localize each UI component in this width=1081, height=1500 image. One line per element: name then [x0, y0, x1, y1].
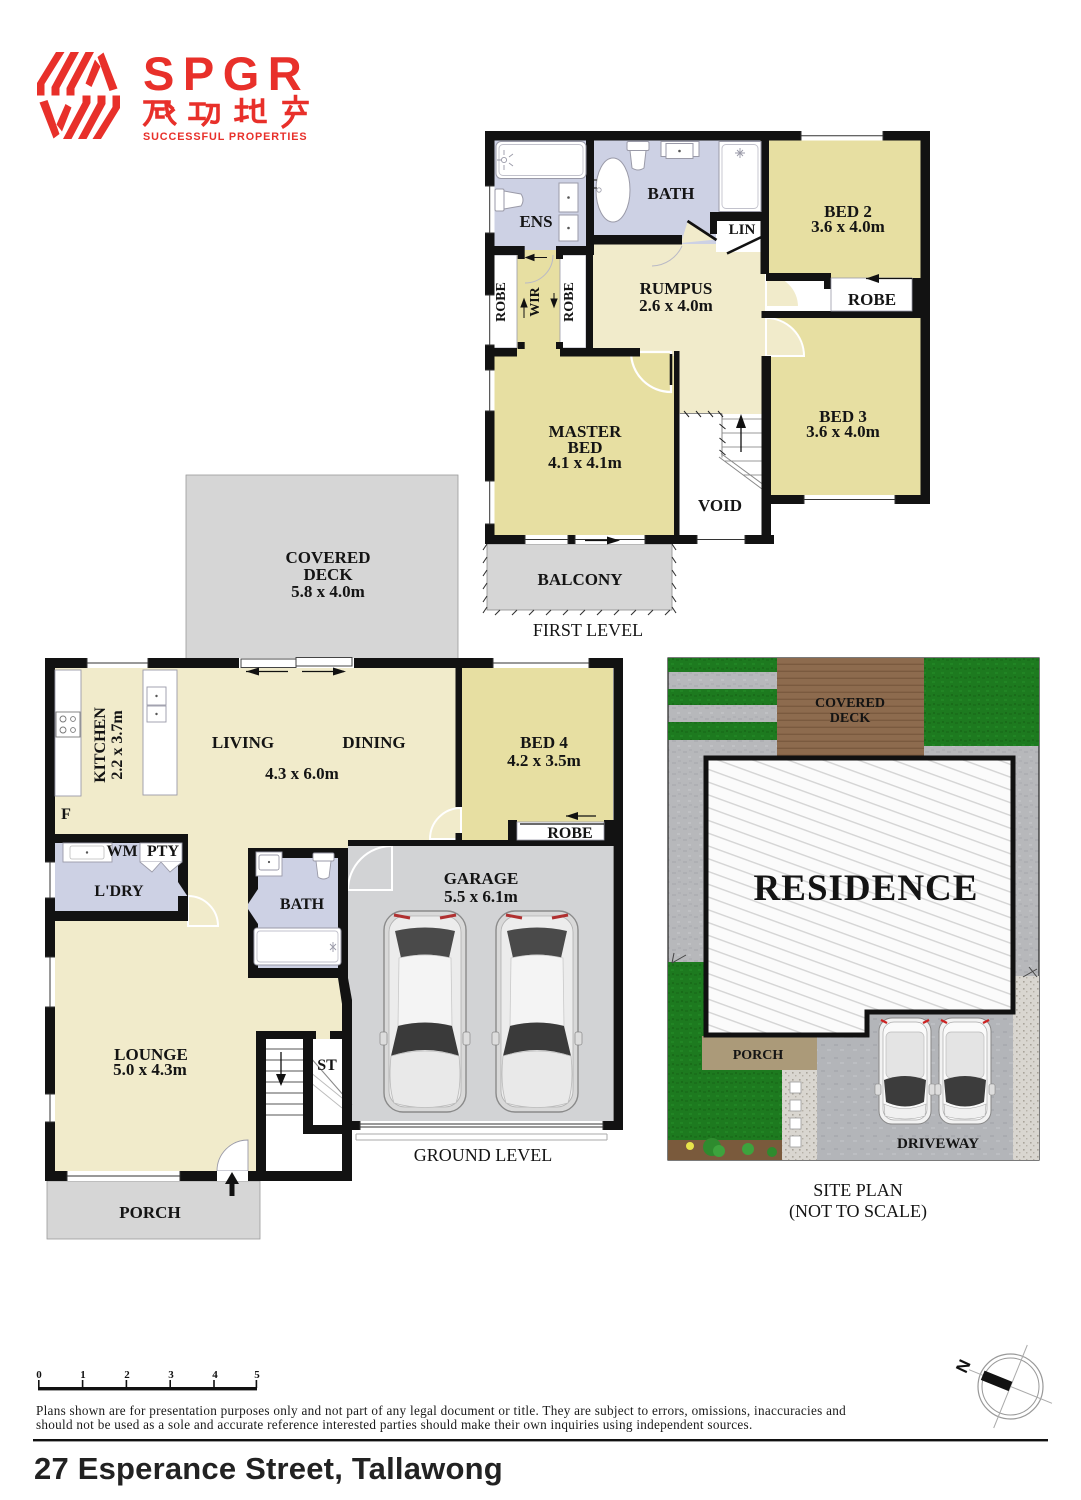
svg-text:PORCH: PORCH [119, 1203, 180, 1222]
svg-text:SPGR: SPGR [143, 47, 310, 100]
svg-text:2: 2 [124, 1369, 130, 1381]
svg-text:(NOT TO SCALE): (NOT TO SCALE) [789, 1201, 927, 1222]
svg-text:5: 5 [254, 1369, 260, 1381]
svg-text:ST: ST [317, 1057, 337, 1074]
svg-text:5.8 x 4.0m: 5.8 x 4.0m [291, 582, 365, 601]
svg-text:ROBE: ROBE [562, 282, 577, 322]
svg-text:ROBE: ROBE [547, 825, 592, 842]
svg-text:should not be used as a sole a: should not be used as a sole and accurat… [36, 1417, 753, 1432]
svg-text:2.6 x 4.0m: 2.6 x 4.0m [639, 296, 713, 315]
svg-text:WM: WM [106, 843, 137, 860]
svg-text:GROUND LEVEL: GROUND LEVEL [414, 1145, 552, 1165]
svg-text:COVERED: COVERED [815, 696, 885, 711]
svg-text:PTY: PTY [147, 843, 179, 860]
svg-text:BATH: BATH [648, 184, 695, 203]
svg-text:BATH: BATH [280, 896, 325, 913]
svg-text:DINING: DINING [342, 733, 405, 752]
svg-text:ROBE: ROBE [494, 282, 509, 322]
svg-text:3.6 x 4.0m: 3.6 x 4.0m [806, 422, 880, 441]
svg-text:LIVING: LIVING [212, 733, 274, 752]
svg-text:KITCHEN: KITCHEN [92, 707, 109, 783]
svg-text:LIN: LIN [729, 222, 756, 238]
svg-text:DECK: DECK [830, 711, 871, 726]
svg-text:WIR: WIR [528, 286, 543, 316]
svg-text:27 Esperance Street, Tallawong: 27 Esperance Street, Tallawong [34, 1451, 503, 1486]
svg-text:4.2 x 3.5m: 4.2 x 3.5m [507, 751, 581, 770]
svg-text:VOID: VOID [698, 496, 742, 515]
svg-text:F: F [61, 806, 71, 823]
svg-text:Plans shown are for presentati: Plans shown are for presentation purpose… [36, 1403, 846, 1418]
svg-text:4.1 x 4.1m: 4.1 x 4.1m [548, 453, 622, 472]
svg-text:RESIDENCE: RESIDENCE [754, 868, 979, 909]
svg-text:2.2 x 3.7m: 2.2 x 3.7m [109, 710, 126, 780]
svg-text:BED 4: BED 4 [520, 733, 568, 752]
svg-text:3.6 x 4.0m: 3.6 x 4.0m [811, 217, 885, 236]
svg-text:L'DRY: L'DRY [94, 883, 144, 900]
svg-text:N: N [952, 1357, 974, 1376]
svg-text:ENS: ENS [519, 212, 552, 231]
svg-text:4.3 x 6.0m: 4.3 x 6.0m [265, 764, 339, 783]
svg-text:ROBE: ROBE [848, 290, 896, 309]
svg-text:GARAGE: GARAGE [444, 869, 519, 888]
svg-text:1: 1 [80, 1369, 86, 1381]
svg-text:5.0 x 4.3m: 5.0 x 4.3m [113, 1060, 187, 1079]
svg-text:SITE PLAN: SITE PLAN [813, 1180, 903, 1200]
svg-text:5.5 x 6.1m: 5.5 x 6.1m [444, 887, 518, 906]
svg-text:BALCONY: BALCONY [537, 570, 622, 589]
svg-text:0: 0 [36, 1369, 42, 1381]
svg-text:4: 4 [212, 1369, 218, 1381]
svg-text:SUCCESSFUL PROPERTIES: SUCCESSFUL PROPERTIES [143, 131, 307, 143]
svg-text:PORCH: PORCH [733, 1048, 784, 1063]
svg-text:FIRST LEVEL: FIRST LEVEL [533, 620, 643, 640]
svg-text:3: 3 [168, 1369, 174, 1381]
svg-text:DRIVEWAY: DRIVEWAY [897, 1136, 979, 1152]
